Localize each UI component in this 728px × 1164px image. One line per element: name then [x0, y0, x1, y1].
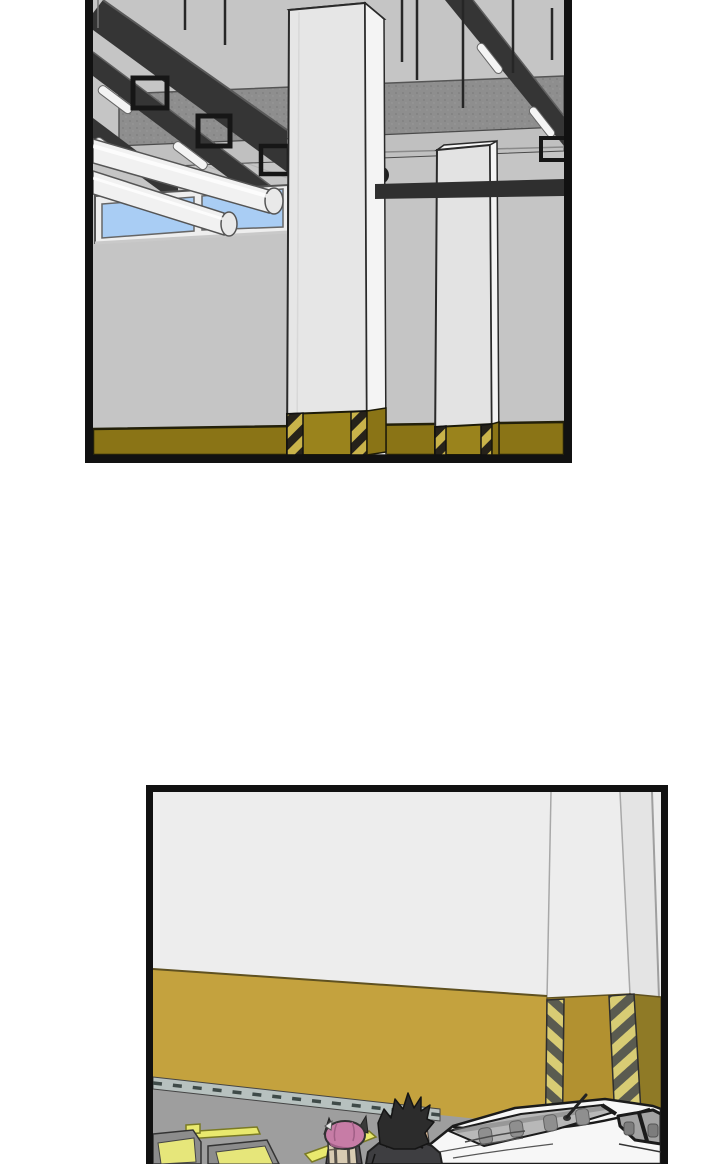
- hazard-stripe: [435, 426, 446, 455]
- car-seat: [509, 1120, 524, 1138]
- wheel-stop-1: [153, 1130, 201, 1164]
- hazard-stripe: [351, 411, 367, 455]
- wheel-stop-yellow-face: [158, 1138, 196, 1164]
- garage-wall-illustration: [153, 792, 661, 1164]
- car-seat: [575, 1108, 590, 1126]
- car-seat: [624, 1122, 634, 1135]
- pipe-end-cap: [265, 188, 283, 214]
- panel-garage-wall: [146, 785, 668, 1164]
- central-pillar: [287, 3, 386, 455]
- car-seat: [648, 1124, 658, 1137]
- character-pink-hair: [324, 1116, 368, 1164]
- hazard-stripe: [481, 424, 492, 455]
- garage-ceiling-illustration: [93, 0, 564, 455]
- hazard-stripe: [287, 413, 303, 455]
- central-pillar-base-side: [367, 408, 386, 455]
- pipe-end-cap: [221, 212, 237, 236]
- car-seat: [543, 1114, 558, 1132]
- central-pillar-side-face: [365, 3, 386, 455]
- comic-page: { "page": { "width": 728, "height": 1164…: [0, 0, 728, 1164]
- panel-garage-ceiling: [85, 0, 572, 463]
- right-pillar-base-side: [492, 422, 499, 455]
